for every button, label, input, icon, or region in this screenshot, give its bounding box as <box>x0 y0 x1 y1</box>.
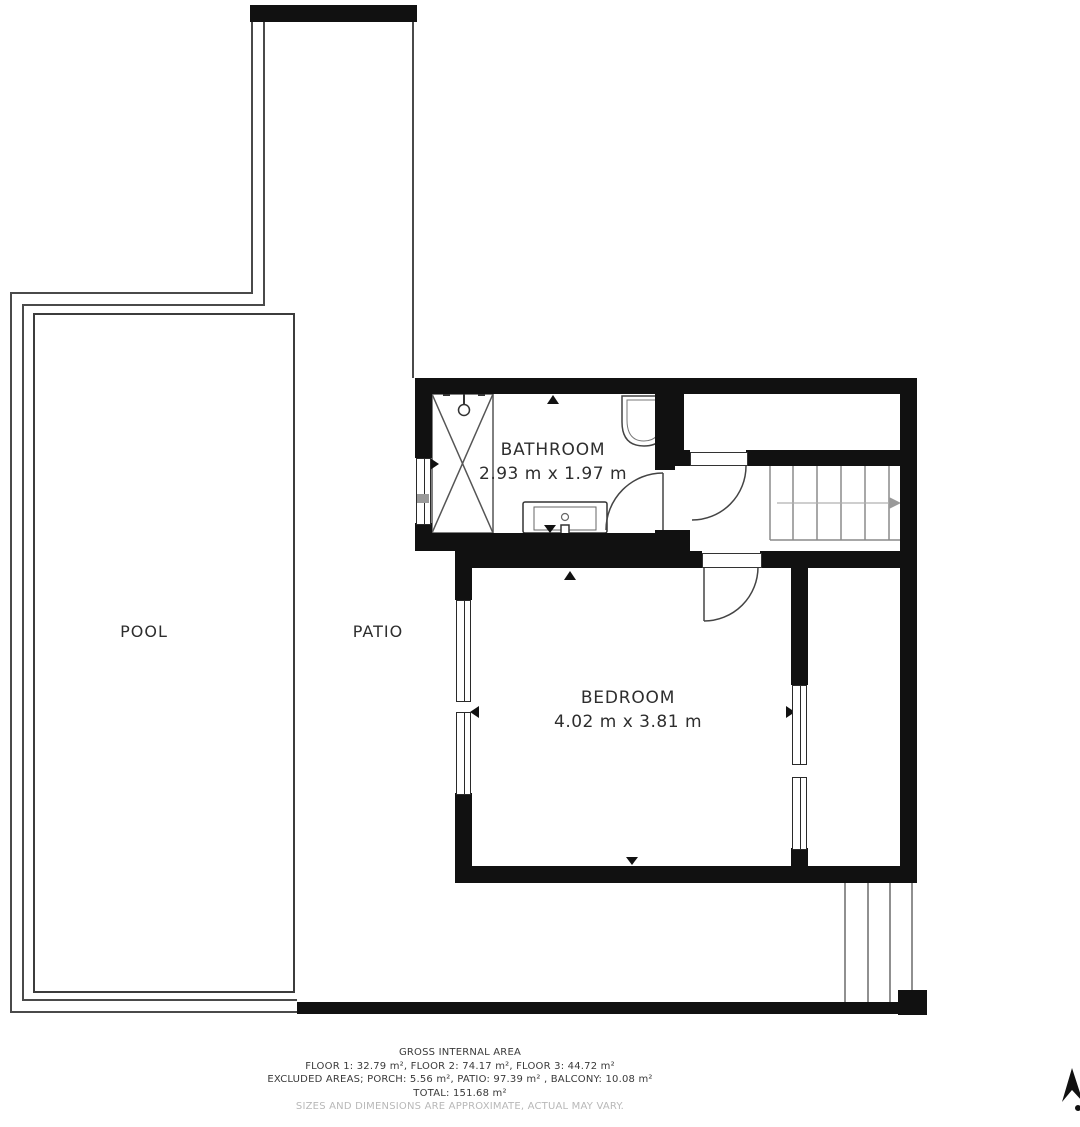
north-arrow-icon <box>1062 1068 1080 1111</box>
area-summary: GROSS INTERNAL AREA FLOOR 1: 32.79 m², F… <box>110 1046 810 1114</box>
bedroom-right-window-1 <box>792 685 807 765</box>
bathroom-name: BATHROOM <box>453 440 653 460</box>
total-area: TOTAL: 151.68 m² <box>110 1087 810 1101</box>
floor-plan: POOL PATIO BATHROOM 2.93 m x 1.97 m BEDR… <box>0 0 1080 1127</box>
bedroom-right-window-2 <box>792 777 807 850</box>
excluded-areas: EXCLUDED AREAS; PORCH: 5.56 m², PATIO: 9… <box>110 1073 810 1087</box>
wall-bottom-boundary <box>297 1002 905 1014</box>
wall-bathroom-left-upper <box>415 378 432 458</box>
bedroom-left-window-1 <box>456 600 471 702</box>
exterior-steps <box>845 883 912 1002</box>
wall-bedroom-right-upper <box>791 551 808 685</box>
stairs-direction-arrow <box>777 497 901 509</box>
patio-label: PATIO <box>318 622 438 641</box>
wall-bathroom-bottom <box>415 533 677 551</box>
floor-areas: FLOOR 1: 32.79 m², FLOOR 2: 74.17 m², FL… <box>110 1060 810 1074</box>
storeroom-door-threshold <box>690 452 748 466</box>
wall-building-top <box>415 378 917 394</box>
bathroom-window <box>416 458 431 525</box>
pool-label: POOL <box>84 622 204 641</box>
wall-storeroom-left <box>667 394 684 452</box>
disclaimer: SIZES AND DIMENSIONS ARE APPROXIMATE, AC… <box>110 1100 810 1114</box>
wall-right-exterior <box>900 378 917 883</box>
bathroom-window-mullion <box>417 494 429 503</box>
storeroom-door-arc <box>692 466 746 520</box>
wall-bedroom-right-lower <box>791 848 808 883</box>
bedroom-door-arc <box>704 567 758 621</box>
pool-outline <box>33 313 295 993</box>
bedroom-left-window-2 <box>456 712 471 795</box>
bathroom-dimensions: 2.93 m x 1.97 m <box>453 464 653 484</box>
bedroom-label: BEDROOM 4.02 m x 3.81 m <box>498 688 758 732</box>
wall-bedroom-bottom <box>455 866 917 883</box>
wall-bedroom-left-upper <box>455 551 472 600</box>
gross-internal-area-title: GROSS INTERNAL AREA <box>110 1046 810 1060</box>
wall-bottom-boundary-cap <box>898 990 927 1015</box>
bathroom-label: BATHROOM 2.93 m x 1.97 m <box>453 440 653 484</box>
wall-bedroom-top-right <box>760 551 917 568</box>
bedroom-dimensions: 4.02 m x 3.81 m <box>498 712 758 732</box>
wall-bedroom-top-left <box>457 551 702 568</box>
bedroom-door-threshold <box>702 553 762 568</box>
wall-storeroom-bottom-right <box>746 450 917 466</box>
wall-storeroom-bottom-left <box>667 450 690 466</box>
bedroom-name: BEDROOM <box>498 688 758 708</box>
wall-patio-top <box>250 5 417 22</box>
sink-symbol <box>523 502 607 534</box>
